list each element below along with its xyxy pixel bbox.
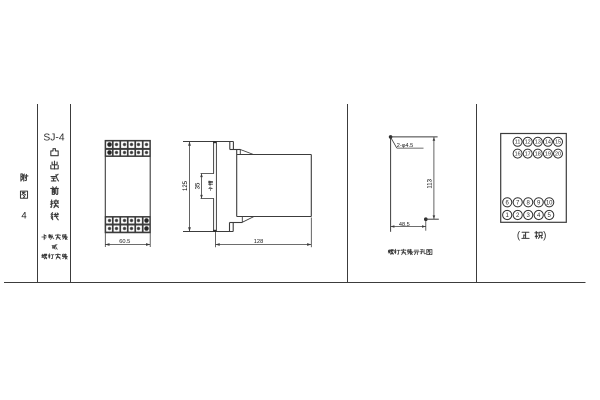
svg-text:125: 125 xyxy=(183,180,189,191)
svg-text:17: 17 xyxy=(525,151,531,157)
svg-text:10: 10 xyxy=(546,200,553,206)
svg-text:13: 13 xyxy=(535,140,541,146)
svg-text:35: 35 xyxy=(195,182,201,189)
svg-text:19: 19 xyxy=(545,151,551,157)
svg-text:2-φ4.5: 2-φ4.5 xyxy=(397,143,413,149)
svg-text:18: 18 xyxy=(535,151,541,157)
svg-text:4: 4 xyxy=(21,210,26,221)
svg-text:14: 14 xyxy=(545,140,551,146)
svg-text:128: 128 xyxy=(254,239,264,245)
svg-text:11: 11 xyxy=(515,140,521,146)
svg-text:20: 20 xyxy=(555,151,561,157)
svg-text:SJ-4: SJ-4 xyxy=(43,133,64,144)
svg-text:113: 113 xyxy=(428,178,434,188)
svg-text:): ) xyxy=(543,231,546,242)
svg-text:48.5: 48.5 xyxy=(399,222,410,228)
svg-text:60.5: 60.5 xyxy=(119,239,130,245)
svg-text:12: 12 xyxy=(525,140,531,146)
svg-text:15: 15 xyxy=(555,140,561,146)
svg-text:16: 16 xyxy=(515,151,521,157)
